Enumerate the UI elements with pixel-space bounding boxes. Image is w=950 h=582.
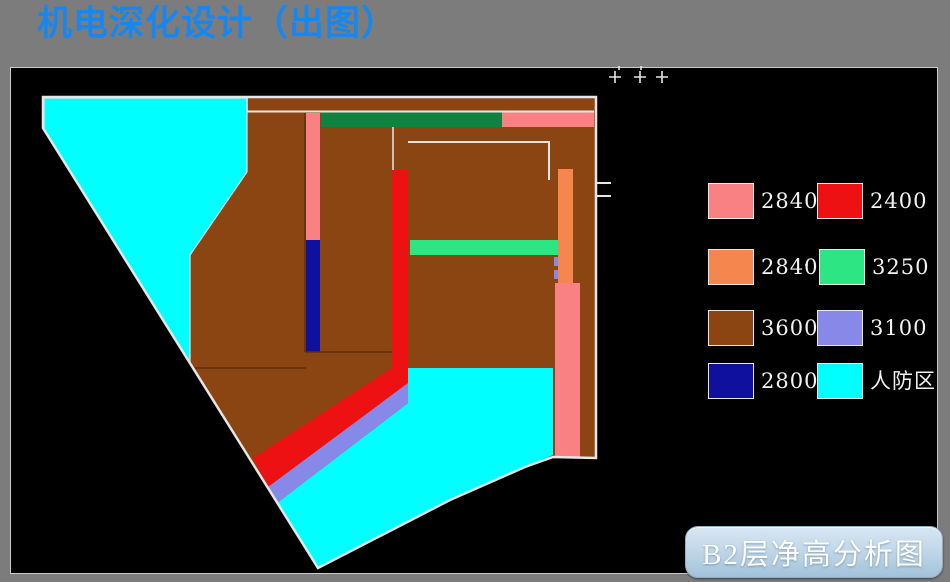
b2-floor-plan	[43, 66, 668, 568]
legend-item: 3100	[817, 310, 927, 346]
legend-swatch-navy	[708, 363, 754, 399]
legend-swatch-red	[817, 183, 863, 219]
legend-item: 2840	[708, 183, 818, 219]
legend-item: 3250	[819, 249, 929, 285]
legend-value: 2800	[761, 364, 818, 398]
plan-region-darkgreen-band	[321, 112, 502, 127]
legend-value: 3600	[761, 311, 818, 345]
legend-value: 3100	[870, 311, 927, 345]
legend-item: 2800	[708, 363, 818, 399]
legend-swatch-brown	[708, 310, 754, 346]
legend-dot-mark: ·	[803, 254, 810, 279]
legend-swatch-green	[819, 249, 865, 285]
plan-region-navy-2800	[306, 240, 320, 352]
plan-region-pink-top-band	[502, 112, 594, 127]
legend-item: 2840	[708, 249, 818, 285]
plan-region-orange-2840	[558, 169, 573, 283]
legend-swatch-pink	[708, 183, 754, 219]
plan-region-pink-right	[555, 283, 580, 457]
b2-caption-button[interactable]: B2层净高分析图	[685, 526, 943, 578]
legend-item: 人防区	[817, 363, 936, 399]
legend-swatch-violet	[817, 310, 863, 346]
plan-region-green-3250	[410, 240, 558, 255]
legend-value: 3250	[872, 250, 929, 284]
dimension-tick-marks	[596, 183, 611, 196]
floor-plan-drawing	[0, 0, 950, 582]
legend-value: 2400	[870, 184, 927, 218]
legend-value: 2840	[761, 184, 818, 218]
crosshair-plus-icons	[609, 66, 668, 83]
plan-region-pink-corridor	[306, 113, 320, 240]
b2-caption-label: B2层净高分析图	[702, 531, 926, 573]
legend-item: 2400	[817, 183, 927, 219]
legend-swatch-cyan	[817, 363, 863, 399]
legend-value: 人防区	[870, 364, 936, 398]
legend-swatch-orange	[708, 249, 754, 285]
legend-item: 3600	[708, 310, 818, 346]
